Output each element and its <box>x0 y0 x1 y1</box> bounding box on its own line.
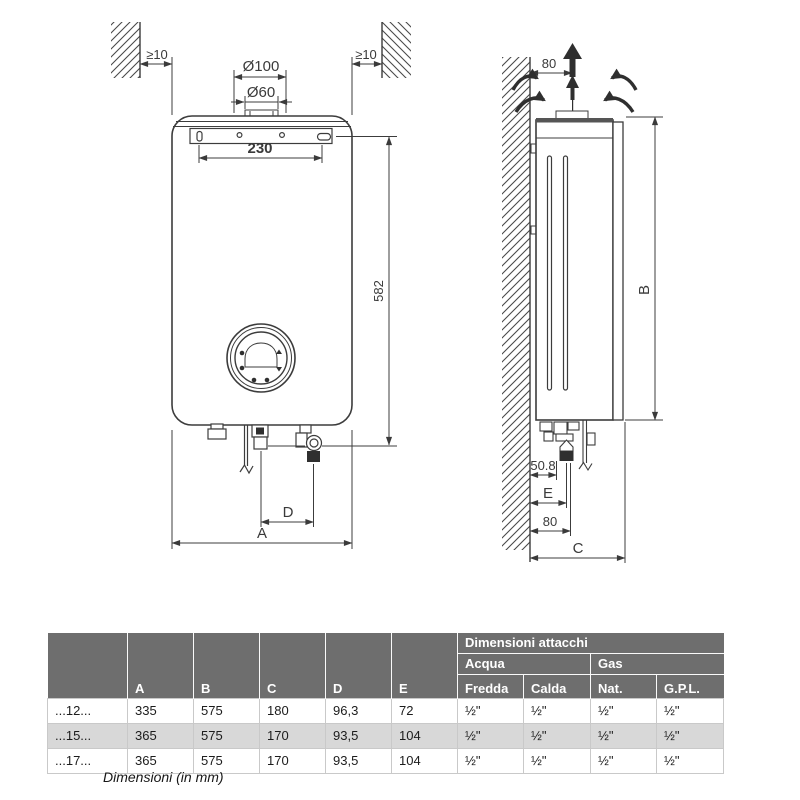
table-cell: ½" <box>524 749 591 774</box>
table-cell: 575 <box>194 724 260 749</box>
table-row-15: ...15... 365 575 170 93,5 104 ½" ½" ½" ½… <box>48 724 724 749</box>
table-cell: ½" <box>524 724 591 749</box>
side-view: 80 <box>502 43 663 563</box>
table-cell: ½" <box>524 699 591 724</box>
page: ≥10 ≥10 Ø100 Ø60 <box>0 0 800 800</box>
table-cell: 180 <box>260 699 326 724</box>
installation-diagram: ≥10 ≥10 Ø100 Ø60 <box>0 0 800 625</box>
table-cell: 335 <box>128 699 194 724</box>
column-header-d: D <box>326 633 392 699</box>
exhaust-arrows-icon <box>563 43 582 111</box>
column-header-model <box>48 633 128 699</box>
dimensions-table: A B C D E Dimensioni attacchi Acqua Gas … <box>47 633 724 774</box>
group-header-attacchi: Dimensioni attacchi <box>458 633 724 654</box>
table-cell: 104 <box>392 749 458 774</box>
dim-drain-offset: 50.8 <box>530 458 555 473</box>
table-cell: ½" <box>657 724 724 749</box>
dim-flue-outer: Ø100 <box>243 58 280 75</box>
table-cell: ½" <box>458 724 524 749</box>
group-header-gas: Gas <box>591 654 724 675</box>
table-cell: ½" <box>458 749 524 774</box>
column-header-gpl: G.P.L. <box>657 675 724 699</box>
dim-flue-inner: Ø60 <box>247 84 275 101</box>
dim-connection-offset: E <box>543 485 553 502</box>
column-header-nat: Nat. <box>591 675 657 699</box>
dim-gas-offset: 80 <box>543 514 557 529</box>
table-cell: ...15... <box>48 724 128 749</box>
table-cell: ½" <box>657 749 724 774</box>
wall-side-hatch <box>502 57 530 562</box>
column-header-a: A <box>128 633 194 699</box>
column-header-calda: Calda <box>524 675 591 699</box>
table-cell: 170 <box>260 724 326 749</box>
table-cell: 575 <box>194 699 260 724</box>
table-cell: ½" <box>591 724 657 749</box>
table-cell: 96,3 <box>326 699 392 724</box>
power-cable-squiggle-side <box>579 463 592 471</box>
table-caption: Dimensioni (in mm) <box>103 769 224 785</box>
dim-connection-spacing: D <box>283 504 294 521</box>
dim-clearance-left: ≥10 <box>146 47 168 62</box>
dim-mount-height: 582 <box>371 280 386 302</box>
table-cell: 93,5 <box>326 724 392 749</box>
column-header-fredda: Fredda <box>458 675 524 699</box>
table-cell: ½" <box>458 699 524 724</box>
wall-left-hatch <box>111 22 140 78</box>
dim-depth: C <box>573 540 584 557</box>
dim-clearance-right: ≥10 <box>355 47 377 62</box>
power-cable-squiggle <box>240 465 253 473</box>
dim-bracket-spacing: 230 <box>247 140 272 157</box>
table-cell: 365 <box>128 724 194 749</box>
table-cell: 93,5 <box>326 749 392 774</box>
column-header-b: B <box>194 633 260 699</box>
wall-right-hatch <box>382 22 411 78</box>
dim-height: B <box>636 285 653 295</box>
fittings-front <box>208 424 322 473</box>
control-dial <box>227 324 295 392</box>
table-row-12: ...12... 335 575 180 96,3 72 ½" ½" ½" ½" <box>48 699 724 724</box>
table-cell: ½" <box>657 699 724 724</box>
group-header-acqua: Acqua <box>458 654 591 675</box>
table-cell: ½" <box>591 699 657 724</box>
table-cell: 72 <box>392 699 458 724</box>
column-header-e: E <box>392 633 458 699</box>
table-cell: 170 <box>260 749 326 774</box>
table-cell: 104 <box>392 724 458 749</box>
table-cell: ...12... <box>48 699 128 724</box>
table-cell: ½" <box>591 749 657 774</box>
dim-width: A <box>257 525 267 542</box>
column-header-c: C <box>260 633 326 699</box>
heater-body-side <box>531 111 623 420</box>
front-view: ≥10 ≥10 Ø100 Ø60 <box>111 22 411 549</box>
dim-flue-wall-offset: 80 <box>542 56 556 71</box>
